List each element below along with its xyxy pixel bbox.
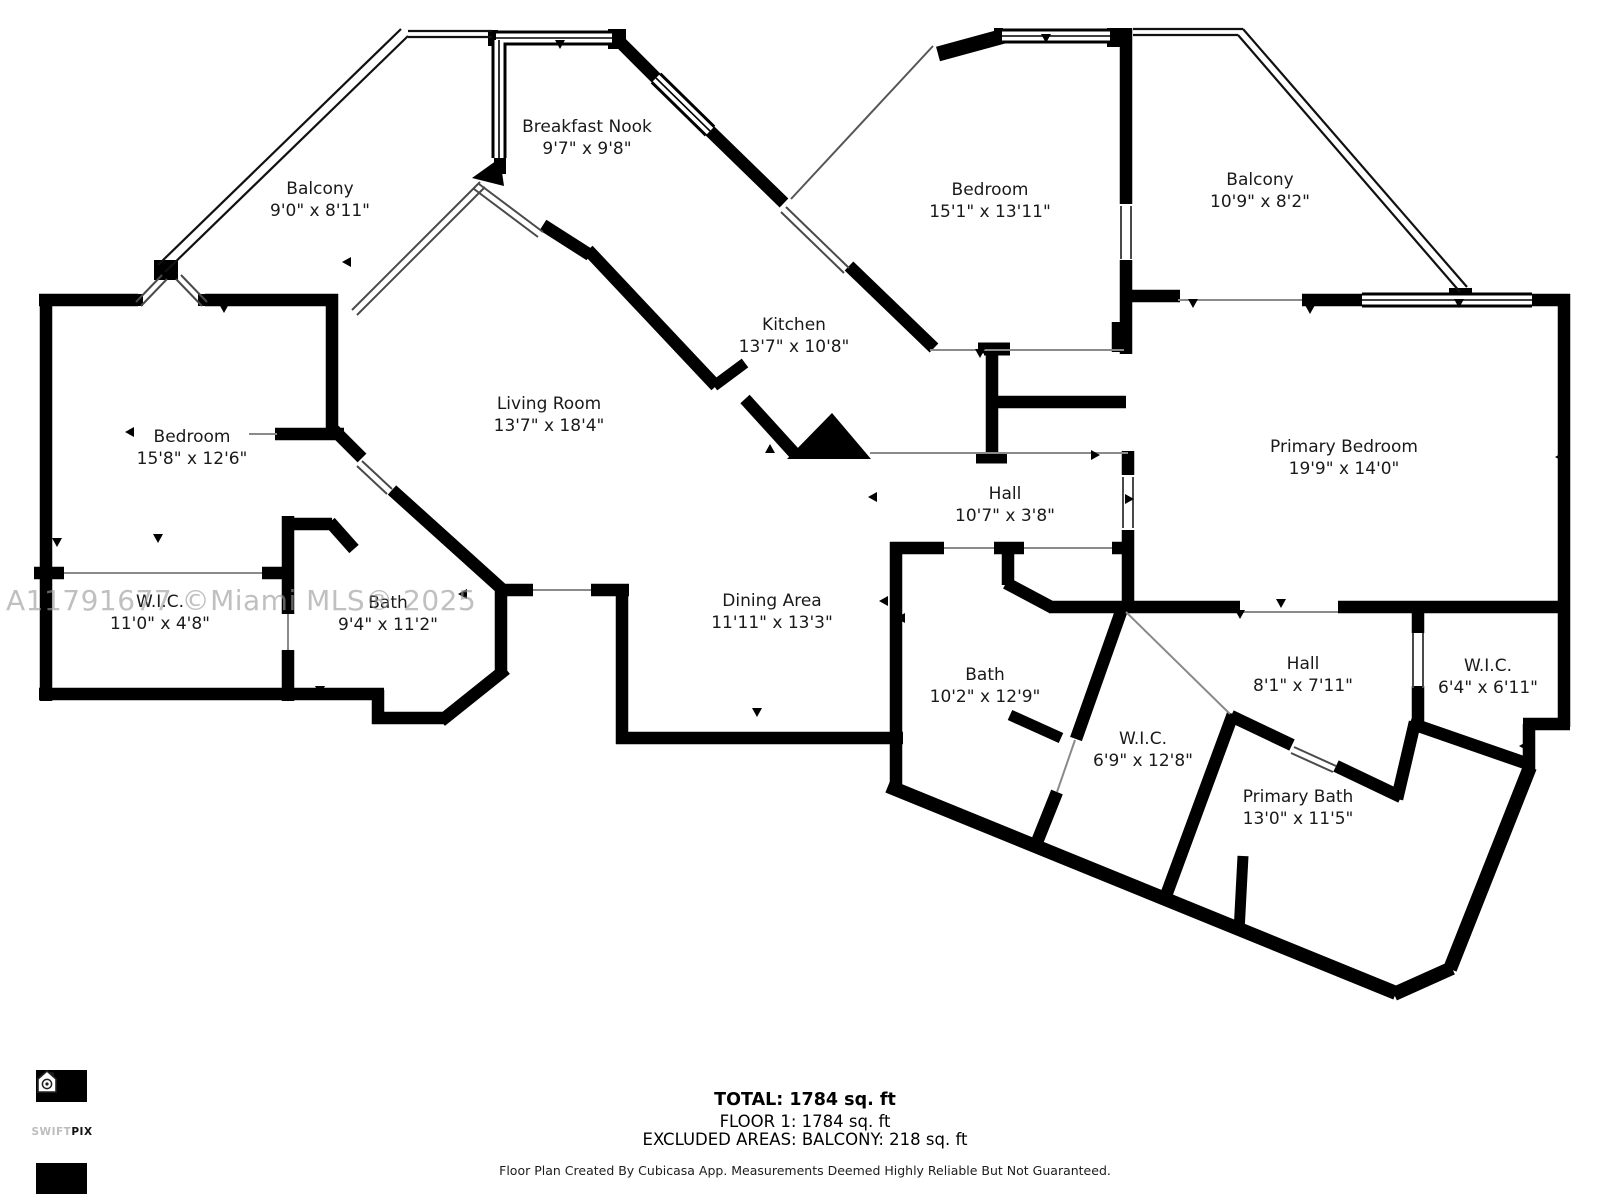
logo-middle: SWIFTPIX	[36, 1102, 88, 1163]
walls-exterior-wing	[888, 767, 1530, 994]
room-label-balcony-left: Balcony9'0" x 8'11"	[270, 178, 370, 222]
room-label-dining-area: Dining Area11'11" x 13'3"	[711, 590, 833, 634]
room-label-kitchen: Kitchen13'7" x 10'8"	[739, 314, 850, 358]
swiftpix-wordmark: SWIFTPIX	[31, 1127, 92, 1138]
room-label-wic-center: W.I.C.6'9" x 12'8"	[1093, 728, 1193, 772]
room-label-breakfast-nook: Breakfast Nook9'7" x 9'8"	[522, 116, 652, 160]
door-ticks	[52, 34, 1564, 751]
summary-excluded: EXCLUDED AREAS: BALCONY: 218 sq. ft	[643, 1130, 968, 1149]
room-label-hall-right: Hall8'1" x 7'11"	[1253, 653, 1353, 697]
summary-floor: FLOOR 1: 1784 sq. ft	[720, 1112, 891, 1131]
room-label-primary-bath: Primary Bath13'0" x 11'5"	[1243, 786, 1354, 830]
disclaimer-text: Floor Plan Created By Cubicasa App. Meas…	[499, 1163, 1111, 1178]
logo-bottom-square	[36, 1163, 87, 1194]
room-label-hall-center: Hall10'7" x 3'8"	[955, 483, 1055, 527]
room-label-primary-bedroom: Primary Bedroom19'9" x 14'0"	[1270, 436, 1418, 480]
room-label-bath-right: Bath10'2" x 12'9"	[930, 664, 1041, 708]
room-label-wic-right: W.I.C.6'4" x 6'11"	[1438, 655, 1538, 699]
swiftpix-house-icon	[36, 1070, 58, 1094]
room-label-living-room: Living Room13'7" x 18'4"	[494, 393, 605, 437]
door-lines	[136, 182, 1423, 772]
mls-watermark: A11791677 ©Miami MLS® 2025	[6, 584, 476, 617]
swiftpix-logo: SWIFTPIX	[36, 1070, 88, 1194]
summary-total: TOTAL: 1784 sq. ft	[714, 1090, 896, 1110]
room-label-balcony-right: Balcony10'9" x 8'2"	[1210, 169, 1310, 213]
room-label-bedroom-left: Bedroom15'8" x 12'6"	[137, 426, 248, 470]
room-label-bedroom-top: Bedroom15'1" x 13'11"	[929, 179, 1051, 223]
exterior-thin-edge	[791, 46, 933, 199]
floorplan-canvas: Balcony9'0" x 8'11" Breakfast Nook9'7" x…	[0, 0, 1600, 1200]
balcony-railings	[158, 29, 1467, 292]
walls-stubs	[714, 348, 1243, 932]
